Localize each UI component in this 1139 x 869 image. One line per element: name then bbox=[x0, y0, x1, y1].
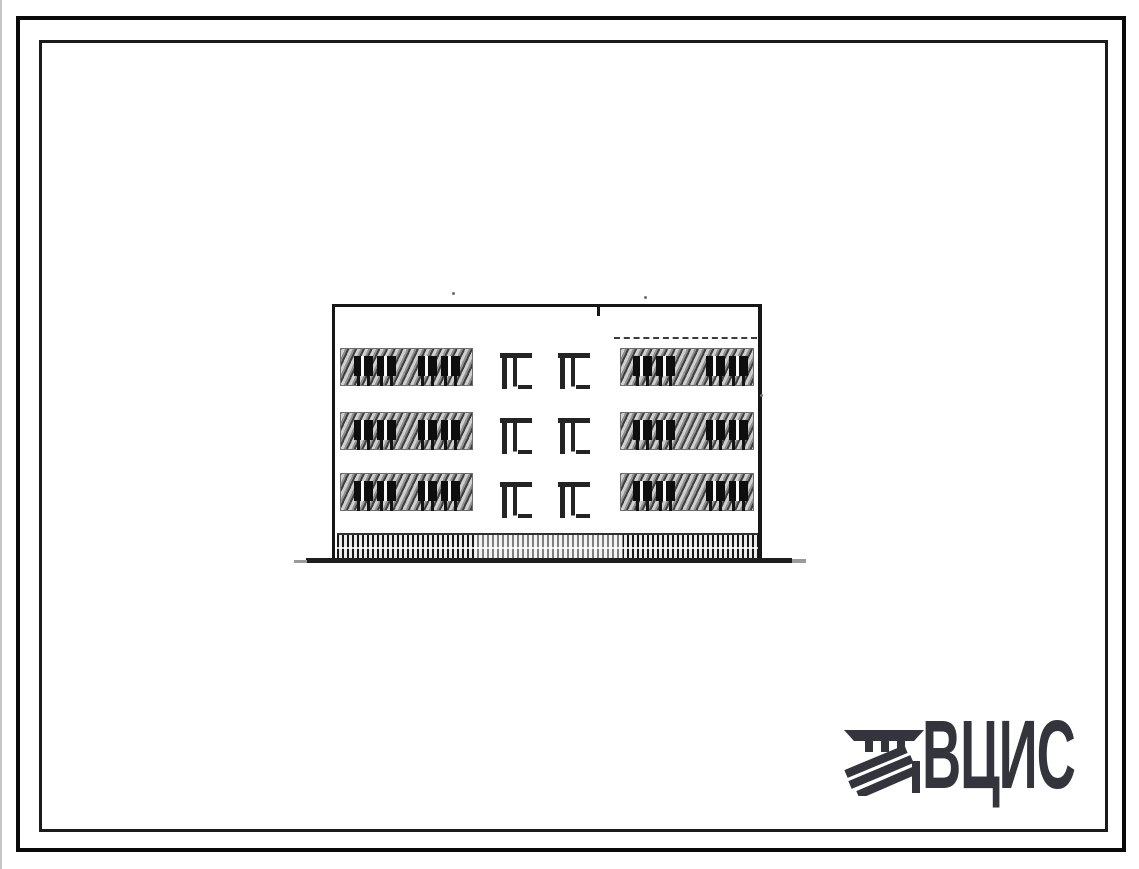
noise-speck bbox=[452, 292, 455, 295]
window bbox=[354, 420, 373, 440]
vcis-logo-text: ВЦИС bbox=[922, 706, 1075, 803]
window bbox=[633, 481, 652, 501]
ground-line-end-left bbox=[294, 560, 307, 563]
roof-joint-tick bbox=[597, 307, 600, 316]
window-group bbox=[706, 356, 748, 386]
window bbox=[633, 420, 652, 440]
window bbox=[441, 481, 460, 501]
balcony-band bbox=[340, 348, 473, 386]
balcony-band bbox=[620, 412, 754, 450]
window bbox=[418, 356, 437, 376]
window-group bbox=[633, 356, 675, 386]
window-group bbox=[706, 481, 748, 511]
stairwell-window bbox=[500, 353, 532, 389]
window-group bbox=[354, 420, 396, 450]
window bbox=[377, 420, 396, 440]
window bbox=[706, 420, 725, 440]
window-group bbox=[418, 481, 460, 511]
balcony-band bbox=[620, 473, 754, 511]
window bbox=[418, 481, 437, 501]
left-wall-line bbox=[332, 304, 335, 560]
window bbox=[706, 356, 725, 376]
ground-line bbox=[306, 558, 792, 563]
window-group bbox=[354, 356, 396, 386]
window bbox=[633, 356, 652, 376]
window bbox=[418, 420, 437, 440]
balcony-band bbox=[340, 473, 473, 511]
window bbox=[729, 481, 748, 501]
window-group bbox=[354, 481, 396, 511]
vcis-logo: ВЦИС bbox=[843, 705, 1088, 815]
stairwell-window bbox=[500, 418, 532, 454]
window-group bbox=[418, 420, 460, 450]
ground-line-end-right bbox=[792, 559, 806, 563]
balcony-band bbox=[340, 412, 473, 450]
vcis-emblem-icon bbox=[844, 730, 924, 796]
roof-line bbox=[332, 304, 762, 307]
window bbox=[729, 420, 748, 440]
window bbox=[441, 420, 460, 440]
noise-speck bbox=[760, 394, 763, 397]
window bbox=[377, 356, 396, 376]
stairwell-window bbox=[558, 353, 590, 389]
window-group bbox=[418, 356, 460, 386]
window bbox=[354, 481, 373, 501]
window bbox=[441, 356, 460, 376]
window bbox=[656, 420, 675, 440]
parapet-dashed-line bbox=[614, 337, 757, 339]
right-wall-line bbox=[758, 304, 762, 560]
window bbox=[377, 481, 396, 501]
window bbox=[729, 356, 748, 376]
window bbox=[706, 481, 725, 501]
stairwell-window bbox=[558, 418, 590, 454]
balcony-band bbox=[620, 348, 754, 386]
stairwell-window bbox=[500, 482, 532, 518]
noise-speck bbox=[644, 296, 647, 299]
window-group bbox=[706, 420, 748, 450]
facade-outline bbox=[332, 304, 762, 560]
stairwell-window bbox=[558, 482, 590, 518]
window bbox=[656, 481, 675, 501]
window bbox=[656, 356, 675, 376]
window bbox=[354, 356, 373, 376]
window-group bbox=[633, 420, 675, 450]
window-group bbox=[633, 481, 675, 511]
